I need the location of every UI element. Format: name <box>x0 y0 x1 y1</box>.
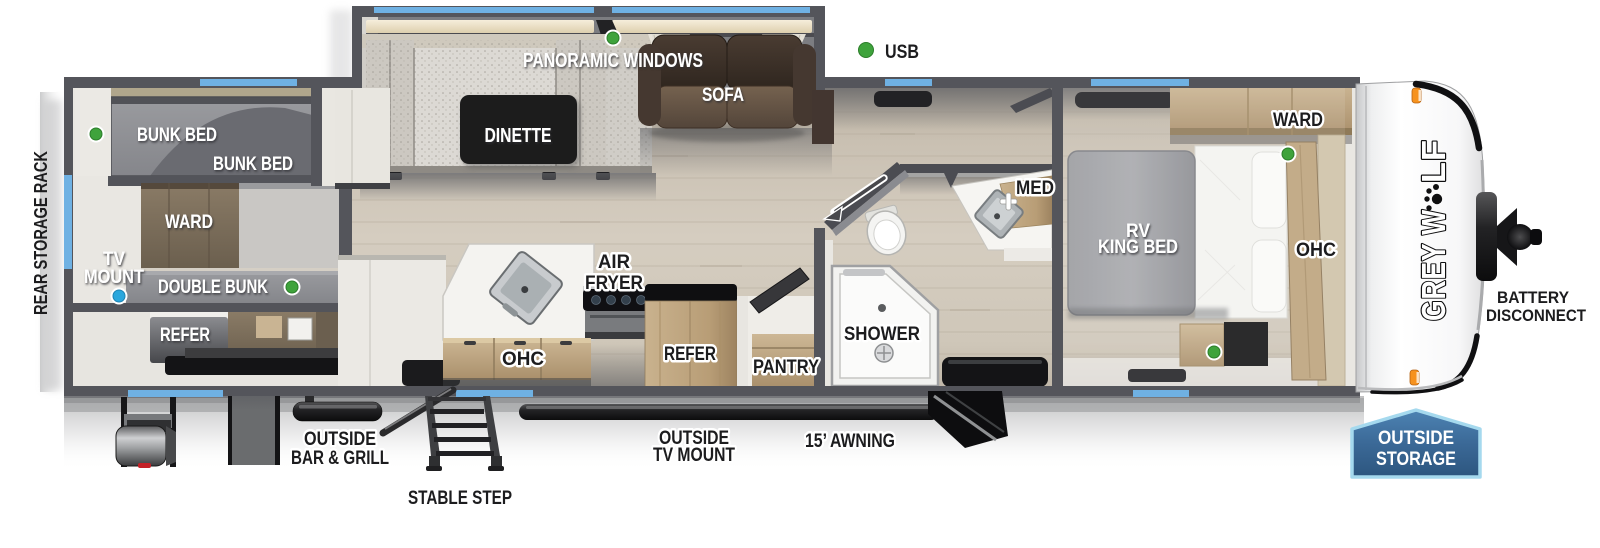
svg-text:WARD: WARD <box>165 212 213 233</box>
svg-text:BATTERY: BATTERY <box>1497 288 1570 307</box>
svg-text:STABLE STEP: STABLE STEP <box>408 488 512 509</box>
svg-text:LF: LF <box>1415 139 1452 183</box>
svg-text:FRYER: FRYER <box>585 273 643 294</box>
svg-text:MOUNT: MOUNT <box>84 267 144 288</box>
svg-text:MED: MED <box>1016 178 1054 199</box>
svg-text:WARD: WARD <box>1273 110 1323 131</box>
svg-text:REFER: REFER <box>664 344 716 365</box>
svg-text:15’ AWNING: 15’ AWNING <box>805 431 895 452</box>
svg-text:DINETTE: DINETTE <box>485 125 552 147</box>
svg-text:DOUBLE BUNK: DOUBLE BUNK <box>158 277 268 298</box>
svg-text:SHOWER: SHOWER <box>844 324 920 345</box>
svg-text:AIR: AIR <box>598 252 630 273</box>
svg-text:PANTRY: PANTRY <box>753 357 819 378</box>
svg-text:BAR & GRILL: BAR & GRILL <box>291 448 389 469</box>
svg-text:STORAGE: STORAGE <box>1376 449 1456 470</box>
svg-text:OUTSIDE: OUTSIDE <box>304 429 376 450</box>
svg-text:OHC: OHC <box>1296 240 1336 261</box>
svg-text:PANORAMIC WINDOWS: PANORAMIC WINDOWS <box>523 50 703 72</box>
svg-text:REAR STORAGE RACK: REAR STORAGE RACK <box>31 151 51 315</box>
svg-text:SOFA: SOFA <box>702 85 744 106</box>
svg-text:REFER: REFER <box>160 325 210 346</box>
svg-text:TV MOUNT: TV MOUNT <box>653 445 735 466</box>
svg-text:USB: USB <box>885 42 919 63</box>
svg-text:BUNK BED: BUNK BED <box>137 125 217 146</box>
svg-text:OHC: OHC <box>502 349 544 370</box>
svg-text:OUTSIDE: OUTSIDE <box>1378 428 1454 449</box>
svg-text:DISCONNECT: DISCONNECT <box>1486 306 1587 325</box>
svg-text:GREY W: GREY W <box>1415 209 1452 321</box>
svg-text:KING BED: KING BED <box>1098 237 1178 258</box>
svg-text:BUNK BED: BUNK BED <box>213 154 293 175</box>
